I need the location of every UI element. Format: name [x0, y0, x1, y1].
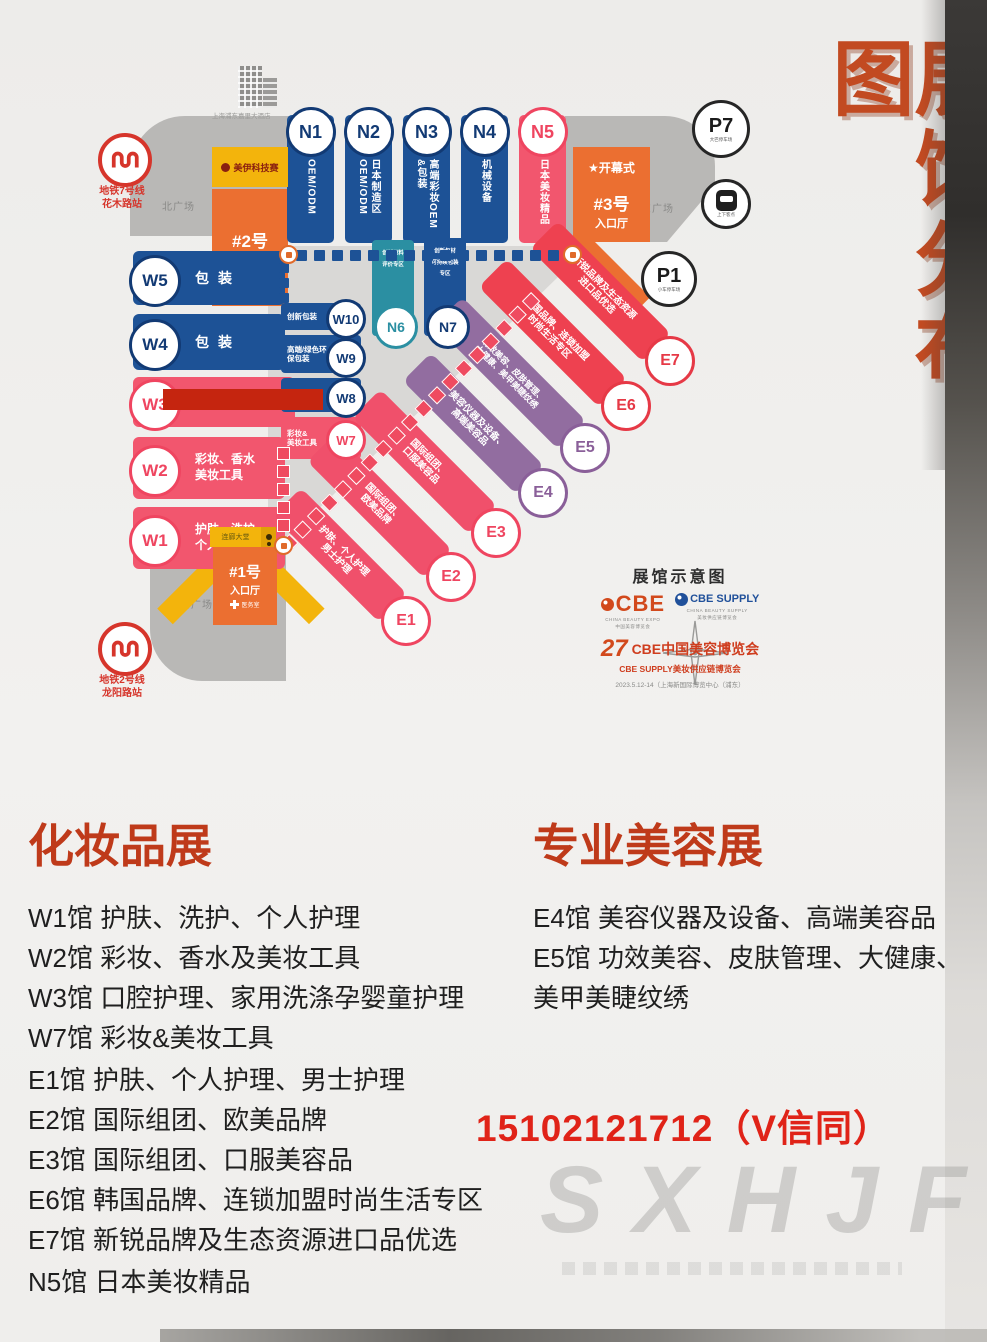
list-item: E4馆 美容仪器及设备、高端美容品 [533, 898, 936, 935]
list-item: 美甲美睫纹绣 [533, 978, 689, 1015]
list-item: W7馆 彩妆&美妆工具 [28, 1018, 274, 1055]
parking-P1: P1 小车停车场 [641, 251, 697, 307]
walkway-strip: 连廊大堂 [210, 527, 276, 547]
medical-cross-icon [230, 600, 239, 609]
parking-P7: P7 大巴停车场 [692, 100, 750, 158]
hall-E3-badge: E3 [471, 508, 521, 558]
metro-line7-caption: 地铁7号线 花木路站 [85, 186, 159, 211]
escalator-icon [279, 245, 298, 264]
hall-E4-badge: E4 [518, 468, 568, 518]
parking-P7-label: P7 [709, 116, 733, 136]
photo-edge-shadow [921, 0, 947, 470]
hall-N4-text: 机械设备 [461, 159, 508, 239]
entrance-1-hall: #1号 入口厅 医务室 [213, 545, 277, 625]
hall-N6-badge: N6 [374, 305, 418, 349]
hall-W4-text: 包装 [195, 332, 285, 352]
booth-mini-column [279, 263, 289, 303]
hall-E2-badge: E2 [426, 552, 476, 602]
hall-W5-badge: W5 [129, 255, 181, 307]
hall-W5-text: 包装 [195, 268, 285, 288]
hall-N7-badge: N7 [426, 305, 470, 349]
legend-block: 展馆示意图 CBE CHINA BEAUTY EXPO 中国美容博览会 CBE … [590, 563, 770, 689]
list-item: E2馆 国际组团、欧美品牌 [28, 1100, 327, 1137]
escalator-icon [274, 536, 293, 555]
metro-line7-station: 花木路站 [85, 199, 159, 212]
hall-W10-badge: W10 [326, 299, 366, 339]
contact-phone: 15102121712（V信同） [476, 1098, 891, 1152]
photo-edge-band [945, 0, 987, 1342]
section-title-beauty: 专业美容展 [533, 810, 763, 876]
hall-N4: N4 机械设备 [461, 115, 508, 243]
parking-P1-label: P1 [657, 266, 681, 286]
taxi-dropoff-circle: 上下客点 [701, 179, 751, 229]
list-item: E5馆 功效美容、皮肤管理、大健康、 [533, 938, 962, 975]
hall-N3-text: 高端彩妆OEM&包装 [403, 159, 450, 239]
list-item: E1馆 护肤、个人护理、男士护理 [28, 1060, 405, 1097]
cbe-ribbon-icon [601, 598, 614, 611]
expo-floor-map-poster: 展馆分布图 北广场 东广场 南广场 上海浦东嘉里大酒店 地铁7号线 花木路站 地… [0, 0, 987, 1342]
walkway-label: 连廊大堂 [210, 532, 261, 542]
opening-ceremony-label: ★开幕式 [588, 159, 635, 176]
metro-line2-name: 地铁2号线 [85, 675, 159, 688]
hall-N4-badge: N4 [460, 107, 510, 157]
entrance-3-label: 入口厅 [595, 215, 628, 231]
expo-supply-line: CBE SUPPLY美妆供应链博览会 [619, 663, 741, 675]
escalator-icon [563, 245, 582, 264]
metro-line2-station: 龙阳路站 [85, 688, 159, 701]
list-item: E6馆 韩国品牌、连锁加盟时尚生活专区 [28, 1180, 483, 1217]
hotel-caption: 上海浦东嘉里大酒店 [212, 110, 271, 120]
logo-row: CBE CHINA BEAUTY EXPO 中国美容博览会 CBE SUPPLY… [601, 593, 760, 630]
hall-E1-badge: E1 [381, 596, 431, 646]
edition-number: 27 [601, 637, 628, 661]
parking-P7-caption: 大巴停车场 [710, 137, 733, 143]
hall-W7-badge: W7 [326, 420, 366, 460]
medical-point: 医务室 [230, 600, 259, 609]
cbe-logo: CBE CHINA BEAUTY EXPO 中国美容博览会 [601, 593, 665, 630]
hall-N3: N3 高端彩妆OEM&包装 [403, 115, 450, 243]
cbe-supply-ribbon-icon [675, 593, 688, 606]
entrance-2-number: #2号 [232, 227, 268, 252]
plaza-north-label: 北广场 [162, 198, 195, 213]
hall-W9-badge: W9 [326, 338, 366, 378]
hall-W4-badge: W4 [129, 319, 181, 371]
entrance-3-number: #3号 [594, 190, 630, 215]
photo-bottom-strip [160, 1329, 987, 1342]
hall-N1: N1 OEM/ODM [287, 115, 334, 243]
section-title-cosmetics: 化妆品展 [28, 810, 212, 876]
red-annotation-bar [163, 389, 323, 410]
metro-line7-icon [98, 133, 152, 187]
list-item: E3馆 国际组团、口服美容品 [28, 1140, 353, 1177]
science-zone-icon [221, 163, 230, 172]
hall-N2-text: 日本制造区OEM/ODM [345, 159, 392, 239]
parking-P1-caption: 小车停车场 [658, 287, 681, 293]
car-icon [716, 190, 737, 211]
taxi-caption: 上下客点 [717, 212, 735, 218]
entrance-3-hall: ★开幕式 #3号 入口厅 [573, 147, 650, 242]
cbe-supply-logo: CBE SUPPLY CHINA BEAUTY SUPPLY 美妆供应链博览会 [675, 593, 759, 621]
science-zone-box: 美伊科技赛 [212, 147, 288, 187]
entrance-1-number: #1号 [229, 561, 261, 582]
metro-line7-name: 地铁7号线 [85, 186, 159, 199]
watermark: SXHJF [540, 1146, 987, 1255]
science-zone-label: 美伊科技赛 [233, 161, 278, 174]
booth-row [296, 250, 559, 261]
list-item: W2馆 彩妆、香水及美妆工具 [28, 938, 360, 975]
hall-N2: N2 日本制造区OEM/ODM [345, 115, 392, 243]
hall-N1-badge: N1 [286, 107, 336, 157]
medical-label: 医务室 [241, 600, 259, 609]
corridor-strip-vertical [277, 447, 290, 532]
hall-W1-badge: W1 [129, 515, 181, 567]
metro-logo-glyph [110, 145, 140, 175]
hall-N5-badge: N5 [518, 107, 568, 157]
hotel-building-icon [238, 66, 262, 108]
hall-E7-badge: E7 [645, 336, 695, 386]
hall-N1-text: OEM/ODM [287, 159, 334, 239]
hall-N3-badge: N3 [402, 107, 452, 157]
list-item: E7馆 新锐品牌及生态资源进口品优选 [28, 1220, 457, 1257]
list-item: W1馆 护肤、洗护、个人护理 [28, 898, 360, 935]
metro-line2-caption: 地铁2号线 龙阳路站 [85, 675, 159, 700]
expo-date-venue: 2023.5.12-14（上海新国际博览中心（浦东） [615, 679, 744, 689]
expo-edition-line: 27 CBE中国美容博览会 [601, 637, 759, 661]
hotel-building-icon-side [263, 78, 277, 108]
hall-E6-badge: E6 [601, 381, 651, 431]
hall-E5-badge: E5 [560, 423, 610, 473]
list-item: W3馆 口腔护理、家用洗涤孕婴童护理 [28, 978, 464, 1015]
legend-title: 展馆示意图 [632, 563, 727, 587]
watermark-subline [562, 1262, 902, 1275]
list-item: N5馆 日本美妆精品 [28, 1262, 250, 1299]
entrance-1-label: 入口厅 [230, 582, 260, 597]
hall-N2-badge: N2 [344, 107, 394, 157]
metro-line2-icon [98, 622, 152, 676]
hall-W2-badge: W2 [129, 445, 181, 497]
metro-logo-glyph [110, 634, 140, 664]
hall-W8-badge: W8 [326, 378, 366, 418]
